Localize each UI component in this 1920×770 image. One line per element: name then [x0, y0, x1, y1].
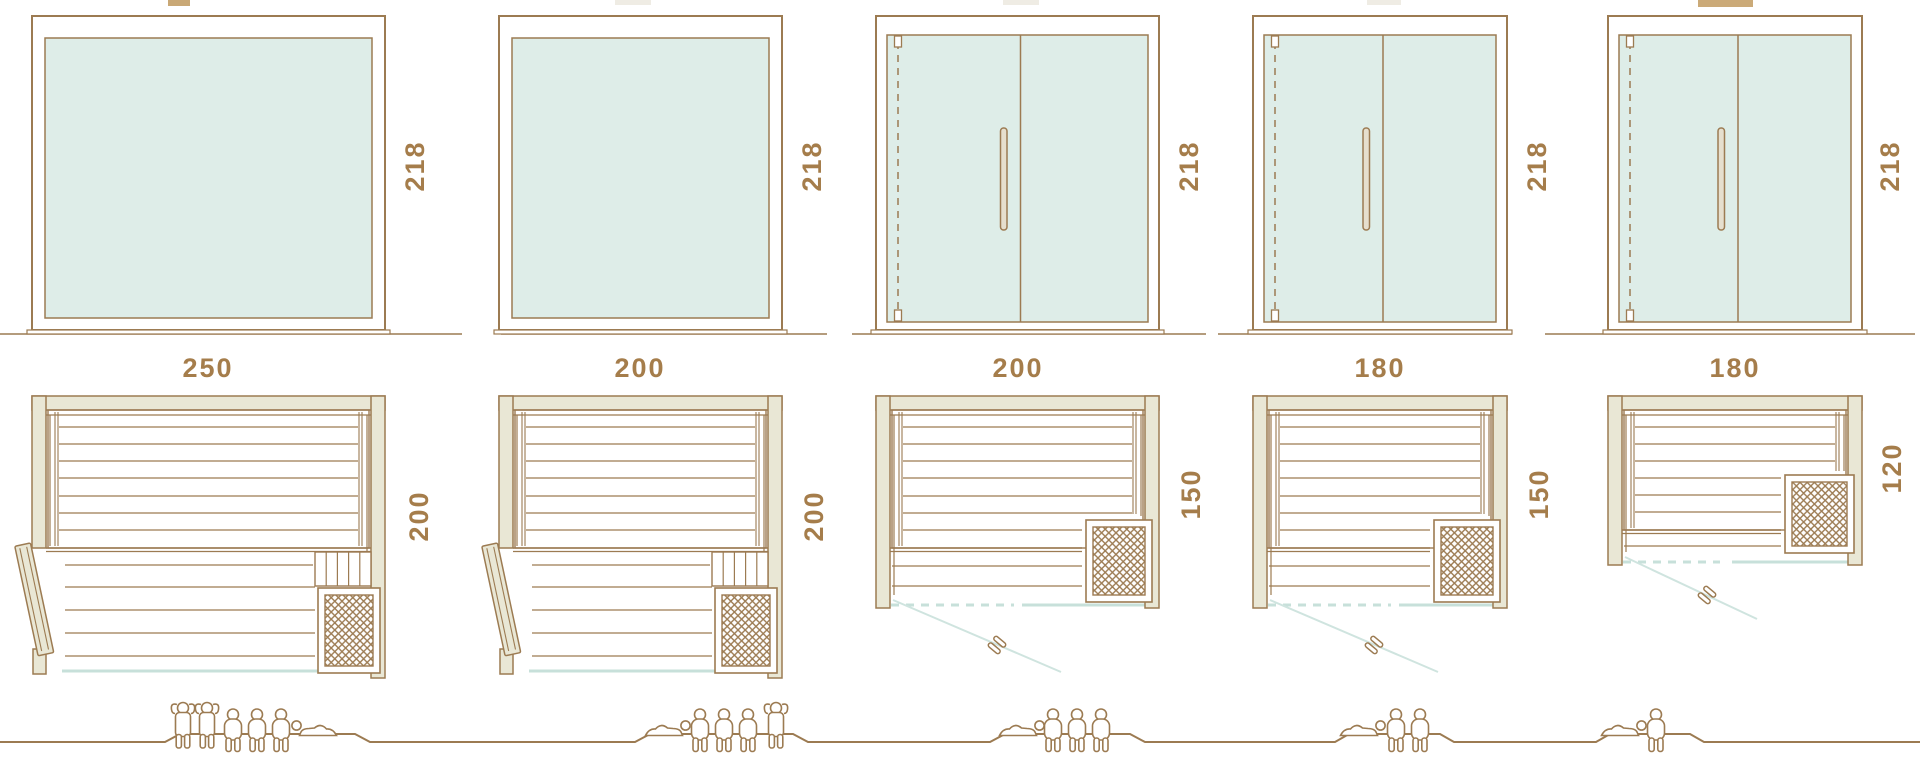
front-height-label: 218	[1522, 140, 1552, 191]
wall-left	[876, 396, 890, 608]
heater-lattice	[722, 595, 770, 666]
cropped-label-fragment	[1003, 0, 1039, 5]
plan-depth-label: 200	[404, 490, 434, 541]
front-elevation-4	[1248, 16, 1512, 334]
front-height-label: 218	[797, 140, 827, 191]
capacity-group-2	[646, 703, 788, 752]
door-swing-line	[1625, 557, 1757, 619]
front-height-label: 218	[1174, 140, 1204, 191]
front-width-label: 200	[992, 353, 1043, 383]
front-elevation-2	[494, 16, 787, 334]
cropped-label-fragment	[1367, 0, 1401, 5]
floor-plan-4	[1253, 396, 1507, 672]
glass-panel	[1264, 35, 1496, 322]
cropped-label-fragment	[615, 0, 651, 5]
capacity-group-3	[1000, 709, 1110, 752]
hinge-bottom-icon	[1272, 310, 1279, 321]
threshold	[27, 330, 390, 334]
glass-panel	[887, 35, 1148, 322]
open-door-leaf	[15, 543, 54, 656]
door-swing-line	[893, 600, 1061, 672]
floor-plan-2	[482, 396, 782, 678]
door-handle-icon	[1363, 128, 1370, 230]
wall-left	[1608, 396, 1622, 565]
wall-top	[1608, 396, 1862, 410]
floor-plan-5	[1608, 396, 1862, 619]
bench-step	[315, 552, 371, 586]
floor-plan-1	[15, 396, 385, 678]
heater-lattice	[1093, 527, 1145, 595]
plan-depth-label: 150	[1176, 468, 1206, 519]
sauna-size-diagram: 250 200 200 180 180 218 218 218 218 218 …	[0, 0, 1920, 770]
heater-lattice	[1792, 482, 1847, 546]
heater-lattice	[325, 595, 373, 666]
threshold	[1248, 330, 1512, 334]
front-height-label: 218	[400, 140, 430, 191]
front-width-label: 180	[1354, 353, 1405, 383]
person-sitting-icon	[1648, 709, 1665, 752]
bench-step	[712, 552, 768, 586]
upper-bench	[515, 410, 766, 548]
person-sitting-icon	[249, 709, 266, 752]
door-swing-line	[1270, 600, 1438, 672]
capacity-group-5	[1602, 709, 1665, 752]
person-sitting-icon	[225, 709, 242, 752]
person-standing-icon	[171, 703, 194, 749]
person-sitting-icon	[1045, 709, 1062, 752]
hinge-bottom-icon	[1627, 310, 1634, 321]
threshold	[494, 330, 787, 334]
open-door-leaf	[482, 543, 521, 656]
heater-lattice	[1441, 527, 1493, 595]
threshold	[871, 330, 1164, 334]
front-width-label: 180	[1709, 353, 1760, 383]
hinge-top-icon	[1627, 36, 1634, 47]
front-elevation-3	[871, 16, 1164, 334]
person-sitting-icon	[692, 709, 709, 752]
front-width-label: 250	[182, 353, 233, 383]
door-handle-icon	[1718, 128, 1725, 230]
cropped-label-fragment	[1698, 0, 1753, 7]
person-sitting-icon	[716, 709, 733, 752]
glass-panel	[512, 38, 769, 318]
wall-left	[32, 396, 46, 548]
person-standing-icon	[764, 703, 787, 749]
wall-top	[32, 396, 385, 410]
front-elevation-1	[27, 16, 390, 334]
hinge-top-icon	[1272, 36, 1279, 47]
person-sitting-icon	[1388, 709, 1405, 752]
threshold	[1603, 330, 1867, 334]
door-handle-icon	[1001, 128, 1008, 230]
plan-depth-label: 200	[799, 490, 829, 541]
front-height-label: 218	[1875, 140, 1905, 191]
capacity-group-4	[1341, 709, 1429, 752]
wall-top	[499, 396, 782, 410]
cropped-label-fragment	[168, 0, 190, 6]
upper-bench	[48, 410, 369, 548]
wall-top	[876, 396, 1159, 410]
glass-panel	[1619, 35, 1851, 322]
person-sitting-icon	[1069, 709, 1086, 752]
wall-left	[499, 396, 513, 548]
hinge-top-icon	[895, 36, 902, 47]
hinge-bottom-icon	[895, 310, 902, 321]
plan-depth-label: 150	[1524, 468, 1554, 519]
person-sitting-icon	[273, 709, 290, 752]
person-standing-icon	[195, 703, 218, 749]
floor-plan-3	[876, 396, 1159, 672]
wall-left	[1253, 396, 1267, 608]
person-sitting-icon	[1093, 709, 1110, 752]
glass-panel	[45, 38, 372, 318]
front-width-label: 200	[614, 353, 665, 383]
wall-top	[1253, 396, 1507, 410]
person-sitting-icon	[740, 709, 757, 752]
capacity-group-1	[171, 703, 336, 752]
person-sitting-icon	[1412, 709, 1429, 752]
plan-depth-label: 120	[1877, 442, 1907, 493]
front-elevation-5	[1603, 16, 1867, 334]
diagram-svg: 250 200 200 180 180 218 218 218 218 218 …	[0, 0, 1920, 770]
